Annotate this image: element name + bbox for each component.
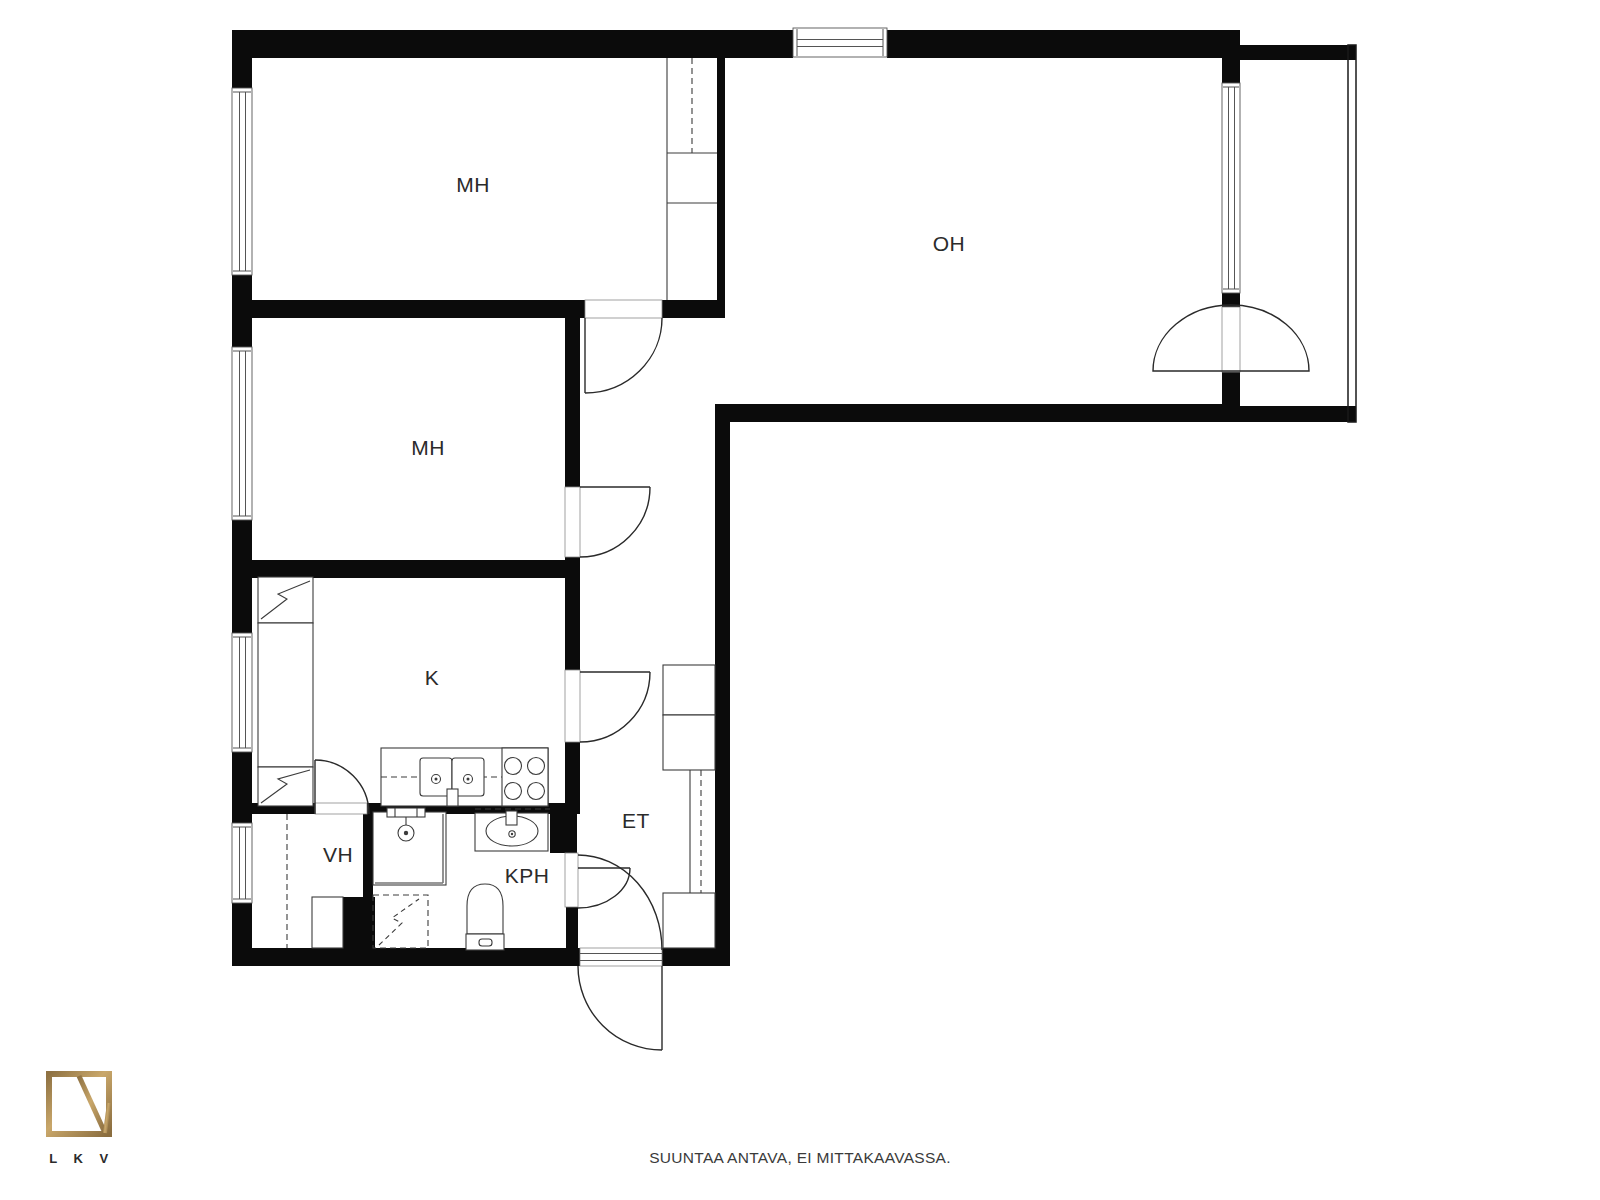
wall-segment <box>252 560 580 578</box>
wall-segment <box>232 752 252 823</box>
wall-segment <box>232 275 252 347</box>
room-label-closet: VH <box>323 843 353 866</box>
disclaimer-text: SUUNTAA ANTAVA, EI MITTAKAAVASSA. <box>649 1149 951 1166</box>
window-bedroom-2 <box>232 347 252 520</box>
toilet <box>466 884 504 950</box>
tall-cabinet <box>258 623 313 767</box>
wall-segment <box>715 404 1240 422</box>
room-label-bedroom-1: MH <box>456 173 490 196</box>
wall-segment <box>715 404 730 948</box>
window-kitchen <box>232 633 252 752</box>
stove <box>502 748 548 806</box>
floor-plan-svg: MH MH OH K ET VH KPH L K V SUUNTAA ANTAV… <box>0 0 1600 1200</box>
door-bathroom <box>565 853 630 908</box>
wall-segment <box>1222 58 1240 83</box>
room-label-kitchen: K <box>425 666 440 689</box>
wall-segment <box>232 30 793 58</box>
wall-segment <box>717 58 725 303</box>
window-bedroom-1 <box>232 88 252 275</box>
balcony-wall-top <box>1240 45 1356 60</box>
wall-segment <box>887 30 1240 58</box>
wardrobe-bedroom-1 <box>667 58 717 300</box>
realtor-logo: L K V <box>49 1074 115 1166</box>
wall-segment <box>1222 372 1240 404</box>
wall-segment <box>343 897 375 948</box>
door-bedroom-1 <box>585 300 662 393</box>
window-closet <box>232 823 252 903</box>
wall-segment <box>252 300 585 318</box>
shower <box>373 808 446 885</box>
room-label-living-room: OH <box>933 232 966 255</box>
washer-reservation <box>373 895 428 948</box>
room-label-entry-hall: ET <box>622 809 650 832</box>
closet-cabinet <box>312 897 343 948</box>
wall-segment <box>566 907 578 948</box>
door-entrance <box>578 855 662 1050</box>
logo-monogram-icon <box>49 1074 109 1134</box>
balcony-railing <box>1348 45 1356 422</box>
wall-segment <box>565 318 580 487</box>
door-balcony <box>1153 305 1309 372</box>
door-bedroom-2 <box>565 487 650 557</box>
wall-segment <box>662 948 730 966</box>
wall-segment <box>363 814 373 897</box>
cabinets-entry-hall <box>663 665 715 948</box>
wall-segment <box>662 300 725 318</box>
room-label-bathroom: KPH <box>505 864 550 887</box>
washbasin <box>475 809 550 851</box>
door-kitchen <box>565 670 650 742</box>
wall-segment <box>232 30 252 88</box>
kitchen-fixtures <box>258 577 548 806</box>
wall-segment <box>232 520 252 633</box>
vent-duct-bottom <box>258 767 313 806</box>
wall-segment <box>550 803 577 853</box>
closet-fixtures <box>287 814 343 948</box>
floor-plan-page: MH MH OH K ET VH KPH L K V SUUNTAA ANTAV… <box>0 0 1600 1200</box>
room-label-bedroom-2: MH <box>411 436 445 459</box>
wall-segment <box>232 948 580 966</box>
logo-caption: L K V <box>49 1151 115 1166</box>
door-closet <box>315 760 369 814</box>
vent-duct-top <box>258 577 313 623</box>
window-balcony <box>1222 83 1240 293</box>
balcony-wall-bottom <box>1240 406 1356 422</box>
window-living-room-top <box>793 28 887 57</box>
